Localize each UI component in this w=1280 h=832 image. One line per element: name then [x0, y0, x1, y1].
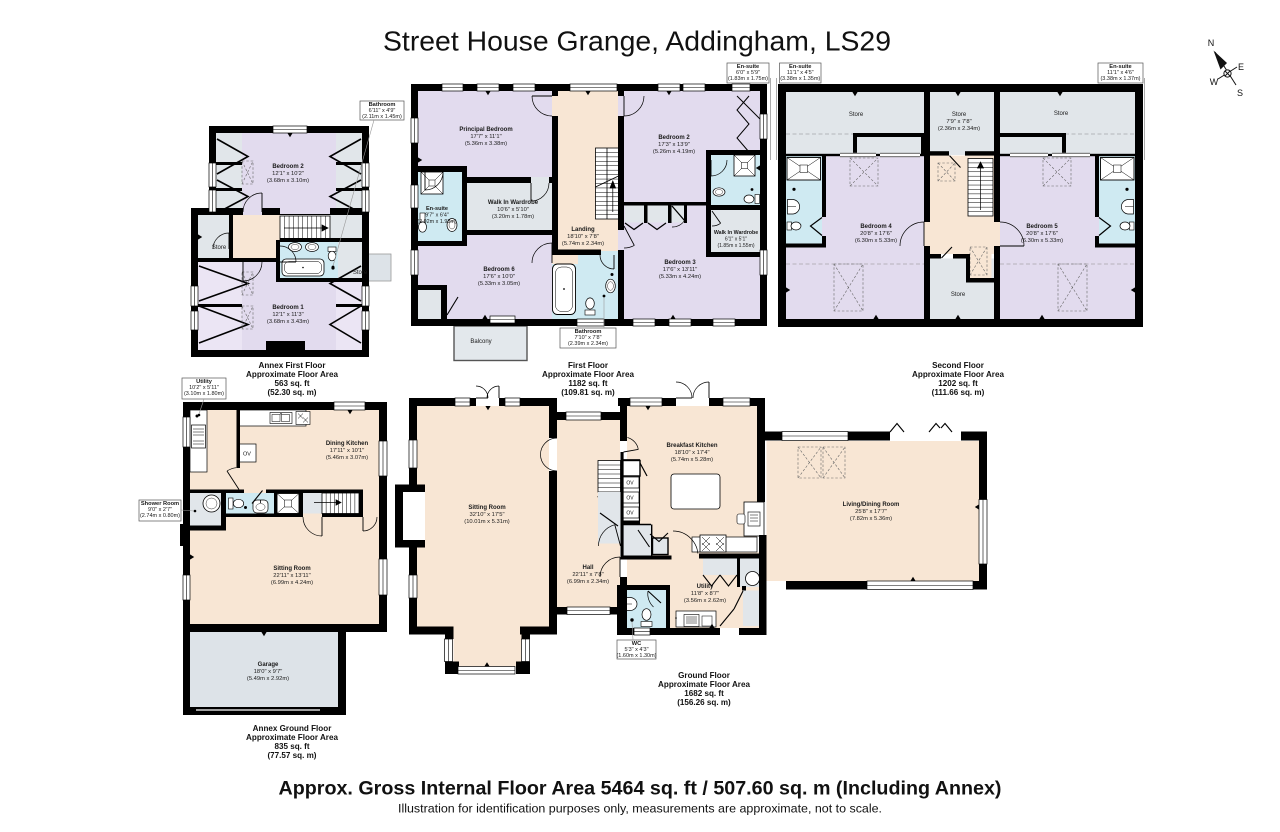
svg-text:18'0" x 9'7": 18'0" x 9'7"	[254, 669, 283, 675]
svg-text:Dining Kitchen: Dining Kitchen	[326, 441, 369, 447]
svg-text:Annex Ground Floor: Annex Ground Floor	[253, 724, 333, 733]
svg-text:(3.10m x 1.80m): (3.10m x 1.80m)	[184, 391, 224, 397]
svg-text:(6.99m x 2.34m): (6.99m x 2.34m)	[567, 579, 609, 585]
svg-text:(52.30 sq. m): (52.30 sq. m)	[267, 388, 316, 397]
svg-text:E: E	[1238, 62, 1244, 72]
svg-text:12'1" x 10'2": 12'1" x 10'2"	[272, 171, 304, 177]
svg-text:Bedroom 3: Bedroom 3	[664, 260, 696, 266]
svg-text:Bedroom 6: Bedroom 6	[483, 267, 515, 273]
svg-text:Hall: Hall	[582, 565, 593, 571]
svg-text:N: N	[1208, 38, 1215, 48]
svg-text:(77.57 sq. m): (77.57 sq. m)	[267, 751, 316, 760]
svg-text:22'11" x 7'8": 22'11" x 7'8"	[572, 572, 603, 578]
svg-text:First Floor: First Floor	[568, 361, 609, 370]
svg-text:W: W	[1210, 77, 1219, 87]
svg-text:Walk In Wardrobe: Walk In Wardrobe	[488, 200, 539, 206]
svg-text:Store: Store	[212, 245, 227, 251]
svg-text:Bedroom 2: Bedroom 2	[272, 164, 304, 170]
svg-text:Bedroom 2: Bedroom 2	[658, 135, 690, 141]
svg-text:Store: Store	[952, 112, 967, 118]
svg-text:Sitting Room: Sitting Room	[468, 505, 505, 511]
svg-text:(2.92m x 1.93m): (2.92m x 1.93m)	[417, 219, 456, 225]
svg-text:S: S	[1237, 88, 1243, 98]
svg-text:Principal Bedroom: Principal Bedroom	[459, 127, 512, 133]
svg-text:Approximate Floor Area: Approximate Floor Area	[542, 370, 634, 379]
svg-text:Balcony: Balcony	[470, 339, 491, 345]
svg-text:17'11" x 10'1": 17'11" x 10'1"	[330, 448, 365, 454]
svg-text:(5.36m x 3.38m): (5.36m x 3.38m)	[465, 141, 507, 147]
svg-text:(156.26 sq. m): (156.26 sq. m)	[677, 698, 731, 707]
svg-text:Breakfast Kitchen: Breakfast Kitchen	[666, 443, 717, 449]
svg-text:Annex First Floor: Annex First Floor	[258, 361, 326, 370]
svg-text:Walk In Wardrobe: Walk In Wardrobe	[714, 230, 758, 236]
svg-text:(6.30m x 5.33m): (6.30m x 5.33m)	[1021, 238, 1063, 244]
svg-text:Bedroom 1: Bedroom 1	[272, 305, 304, 311]
svg-text:10'6" x 5'10": 10'6" x 5'10"	[497, 207, 529, 213]
svg-text:1202 sq. ft: 1202 sq. ft	[938, 379, 978, 388]
svg-text:(3.38m x 1.35m): (3.38m x 1.35m)	[780, 76, 820, 82]
svg-text:17'3" x 13'9": 17'3" x 13'9"	[658, 142, 690, 148]
svg-text:Garage: Garage	[258, 662, 279, 668]
svg-text:(5.26m x 4.19m): (5.26m x 4.19m)	[653, 149, 695, 155]
svg-text:Store: Store	[951, 292, 966, 298]
svg-text:(6.99m x 4.24m): (6.99m x 4.24m)	[271, 580, 313, 586]
svg-text:Bedroom 4: Bedroom 4	[860, 224, 892, 230]
svg-text:Utility: Utility	[697, 584, 714, 590]
svg-text:Approx. Gross Internal Floor A: Approx. Gross Internal Floor Area 5464 s…	[279, 779, 1002, 800]
svg-text:(5.74m x 5.28m): (5.74m x 5.28m)	[671, 457, 713, 463]
svg-text:(5.49m x 2.92m): (5.49m x 2.92m)	[247, 676, 289, 682]
svg-text:Approximate Floor Area: Approximate Floor Area	[658, 680, 750, 689]
svg-text:Approximate Floor Area: Approximate Floor Area	[912, 370, 1004, 379]
svg-text:17'6" x 13'11": 17'6" x 13'11"	[663, 267, 698, 273]
svg-text:En-suite: En-suite	[426, 206, 448, 212]
svg-text:18'10" x 17'4": 18'10" x 17'4"	[674, 450, 709, 456]
svg-text:(10.01m x 5.31m): (10.01m x 5.31m)	[464, 519, 509, 525]
svg-text:Ground Floor: Ground Floor	[678, 671, 731, 680]
svg-text:563 sq. ft: 563 sq. ft	[274, 379, 309, 388]
svg-text:Sitting Room: Sitting Room	[273, 566, 310, 572]
svg-text:(1.83m x 1.75m): (1.83m x 1.75m)	[728, 76, 768, 82]
svg-text:6'1" x 5'1": 6'1" x 5'1"	[725, 236, 747, 242]
svg-text:20'8" x 17'6": 20'8" x 17'6"	[860, 231, 892, 237]
svg-text:(2.74m x 0.80m): (2.74m x 0.80m)	[140, 513, 180, 519]
svg-text:17'7" x 11'1": 17'7" x 11'1"	[470, 134, 501, 140]
svg-text:(2.11m x 1.45m): (2.11m x 1.45m)	[362, 114, 402, 120]
svg-text:1682 sq. ft: 1682 sq. ft	[684, 689, 724, 698]
svg-text:32'10" x 17'5": 32'10" x 17'5"	[469, 512, 504, 518]
svg-text:Approximate Floor Area: Approximate Floor Area	[246, 370, 338, 379]
svg-text:25'8" x 17'7": 25'8" x 17'7"	[855, 509, 887, 515]
svg-text:Living/Dining Room: Living/Dining Room	[843, 502, 900, 508]
svg-text:9'7" x 6'4": 9'7" x 6'4"	[425, 212, 449, 218]
svg-text:(6.30m x 5.33m): (6.30m x 5.33m)	[855, 238, 897, 244]
svg-text:(3.68m x 3.43m): (3.68m x 3.43m)	[267, 319, 309, 325]
svg-text:Store: Store	[353, 270, 368, 276]
svg-text:7'9" x 7'8": 7'9" x 7'8"	[946, 119, 971, 125]
svg-text:18'10" x 7'8": 18'10" x 7'8"	[567, 234, 599, 240]
svg-text:11'8" x 8'7": 11'8" x 8'7"	[691, 591, 719, 597]
svg-text:Street House Grange, Addingham: Street House Grange, Addingham, LS29	[383, 26, 891, 57]
svg-text:22'11" x 13'11": 22'11" x 13'11"	[273, 573, 310, 579]
svg-text:Illustration for identificatio: Illustration for identification purposes…	[398, 802, 882, 816]
svg-text:OV: OV	[626, 496, 634, 502]
svg-text:17'6" x 10'0": 17'6" x 10'0"	[483, 274, 515, 280]
svg-text:(3.68m x 3.10m): (3.68m x 3.10m)	[267, 178, 309, 184]
svg-text:(1.60m x 1.30m): (1.60m x 1.30m)	[616, 653, 656, 659]
svg-text:(3.56m x 2.62m): (3.56m x 2.62m)	[684, 598, 726, 604]
svg-text:1182 sq. ft: 1182 sq. ft	[568, 379, 607, 388]
svg-text:Second Floor: Second Floor	[932, 361, 985, 370]
svg-text:OV: OV	[626, 511, 634, 517]
svg-text:835 sq. ft: 835 sq. ft	[274, 742, 309, 751]
svg-text:(3.20m x 1.78m): (3.20m x 1.78m)	[492, 214, 534, 220]
svg-text:Approximate Floor Area: Approximate Floor Area	[246, 733, 338, 742]
svg-text:(109.81 sq. m): (109.81 sq. m)	[561, 388, 615, 397]
svg-text:Landing: Landing	[571, 227, 595, 233]
svg-text:20'8" x 17'6": 20'8" x 17'6"	[1026, 231, 1058, 237]
svg-text:OV: OV	[243, 452, 251, 458]
svg-text:(3.38m x 1.37m): (3.38m x 1.37m)	[1100, 76, 1140, 82]
svg-text:Bedroom 5: Bedroom 5	[1026, 224, 1058, 230]
svg-text:(5.74m x 2.34m): (5.74m x 2.34m)	[562, 241, 604, 247]
svg-text:(7.82m x 5.36m): (7.82m x 5.36m)	[850, 516, 892, 522]
svg-text:(2.39m x 2.34m): (2.39m x 2.34m)	[568, 341, 608, 347]
svg-text:Store: Store	[849, 112, 864, 118]
svg-text:(5.33m x 3.05m): (5.33m x 3.05m)	[478, 281, 520, 287]
svg-text:Store: Store	[1054, 111, 1069, 117]
svg-text:OV: OV	[626, 481, 634, 487]
svg-text:(5.33m x 4.24m): (5.33m x 4.24m)	[659, 274, 701, 280]
svg-text:(5.46m x 3.07m): (5.46m x 3.07m)	[326, 455, 368, 461]
svg-text:12'1" x 11'3": 12'1" x 11'3"	[272, 312, 303, 318]
svg-text:(111.66 sq. m): (111.66 sq. m)	[932, 388, 985, 397]
svg-text:(1.85m x 1.55m): (1.85m x 1.55m)	[717, 243, 754, 249]
svg-text:(2.36m x 2.34m): (2.36m x 2.34m)	[938, 126, 980, 132]
